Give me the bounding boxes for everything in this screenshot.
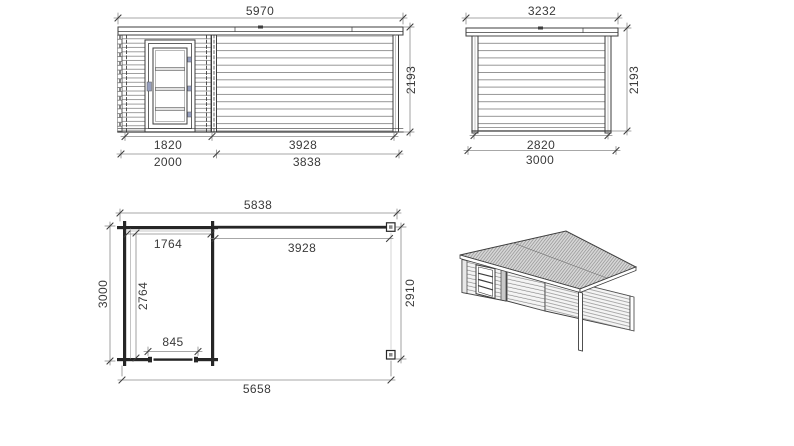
front-partition-post	[212, 35, 217, 132]
iso-door	[476, 265, 495, 299]
plan-door-jamb	[148, 357, 152, 363]
side-roof-fascia	[466, 27, 618, 37]
plan-canopy-post-bottom	[387, 351, 396, 360]
plan-canopy-post-top	[387, 223, 396, 232]
plan-room-walls	[117, 221, 218, 366]
iso-view	[460, 231, 636, 351]
door-rail	[156, 68, 185, 71]
door-hinge	[188, 86, 192, 91]
door-handle	[147, 82, 152, 91]
iso-corner-trim	[462, 260, 467, 294]
plan-canopy-beam	[214, 226, 387, 229]
iso-corner-trim	[501, 268, 506, 301]
door-rail	[156, 108, 185, 111]
plan-door-leaf	[154, 358, 193, 360]
side-wall	[472, 36, 611, 133]
floor-plan-view	[105, 209, 406, 383]
door-hinge	[188, 57, 192, 62]
iso-back-corner-post	[630, 296, 634, 331]
plan-door-jamb	[194, 357, 198, 363]
side-elevation-view	[462, 13, 631, 155]
front-elevation-view	[114, 13, 414, 158]
plan-dimensions	[105, 209, 406, 380]
door-hinge	[188, 112, 192, 117]
drawing-linework	[0, 0, 794, 446]
front-door	[145, 40, 195, 132]
front-roof-fascia	[118, 26, 403, 36]
technical-drawing-sheet: 5970 2193 1820 3928 2000 3838 3232 2193 …	[0, 0, 794, 446]
iso-canopy-post	[579, 292, 583, 351]
door-rail	[156, 88, 185, 91]
log-end-corner	[118, 35, 123, 132]
